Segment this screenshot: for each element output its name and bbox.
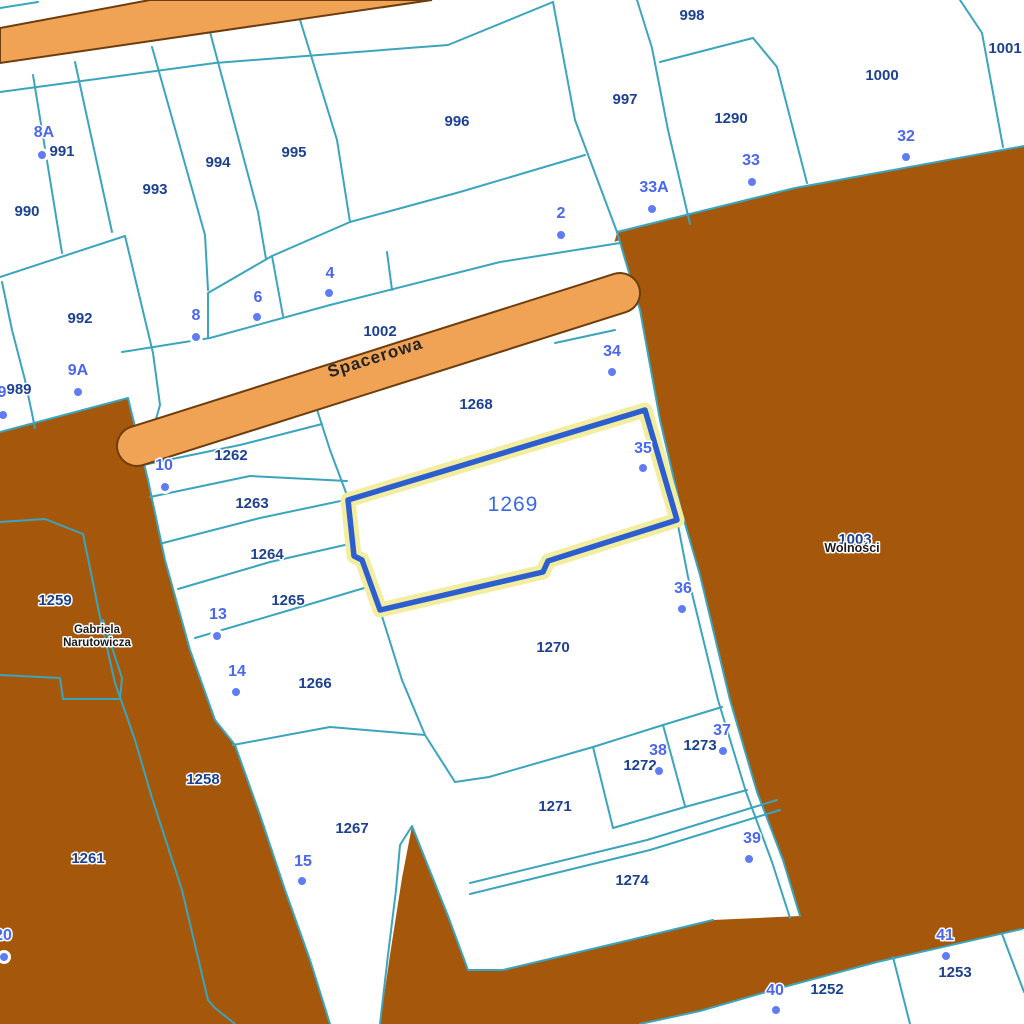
address-point-dot[interactable] <box>941 951 952 962</box>
parcel-number-label: 994 <box>205 154 231 171</box>
parcel-number-label: 995 <box>281 144 306 161</box>
address-number-label: 6 <box>254 289 263 306</box>
parcel-number-label: 996 <box>444 113 469 130</box>
address-point-dot[interactable] <box>654 766 665 777</box>
address-number-label: 4 <box>326 265 335 282</box>
address-point-dot[interactable] <box>191 332 202 343</box>
address-point-dot[interactable] <box>901 152 912 163</box>
address-point-dot[interactable] <box>747 177 758 188</box>
address-point-dot[interactable] <box>744 854 755 865</box>
address-point-dot[interactable] <box>297 876 308 887</box>
address-number-label: 10 <box>155 457 173 474</box>
address-number-label: 32 <box>897 128 915 145</box>
address-point-dot[interactable] <box>73 387 84 398</box>
address-point-dot[interactable] <box>638 463 649 474</box>
address-point-dot[interactable] <box>324 288 335 299</box>
address-point-dot[interactable] <box>0 952 10 963</box>
address-point-dot[interactable] <box>677 604 688 615</box>
address-point-dot[interactable] <box>556 230 567 241</box>
address-point-dot[interactable] <box>771 1005 782 1016</box>
parcel-number-label: 991 <box>49 143 74 160</box>
address-number-label: 41 <box>936 927 954 944</box>
address-number-label: 37 <box>713 722 731 739</box>
parcel-number-label: 997 <box>612 91 637 108</box>
address-number-label: 36 <box>674 580 692 597</box>
parcel-number-label: 1271 <box>538 798 571 815</box>
parcel-number-label: 998 <box>679 7 704 24</box>
parcel-number-label: 1265 <box>271 592 304 609</box>
parcel-number-label: 1261 <box>71 850 104 867</box>
street-label-wolnosci: Wolności <box>824 541 879 555</box>
parcel-number-label: 1259 <box>38 592 71 609</box>
address-number-label: 34 <box>603 343 621 360</box>
parcel-number-label: 1272 <box>623 757 656 774</box>
cadastral-map[interactable]: 9919909939949959969979981290100010019929… <box>0 0 1024 1024</box>
address-point-dot[interactable] <box>212 631 223 642</box>
parcel-number-label: 989 <box>6 381 31 398</box>
parcel-number-label: 1266 <box>298 675 331 692</box>
address-number-label: 13 <box>209 606 227 623</box>
parcel-number-label: 1264 <box>250 546 284 563</box>
address-number-label: 8 <box>192 307 201 324</box>
address-number-label: 40 <box>766 982 784 999</box>
address-point-dot[interactable] <box>0 410 9 421</box>
address-number-label: 14 <box>228 663 246 680</box>
parcel-number-label: 1001 <box>988 40 1021 57</box>
street-label-narutowicza-line1: Gabriela <box>74 624 121 636</box>
parcel-number-label: 1290 <box>714 110 747 127</box>
address-number-label: 33 <box>742 152 760 169</box>
parcel-number-label: 1252 <box>810 981 843 998</box>
parcel-number-label: 990 <box>14 203 39 220</box>
address-number-label: 20 <box>0 927 12 944</box>
parcel-number-label: 1268 <box>459 396 492 413</box>
parcel-number-label: 992 <box>67 310 92 327</box>
address-number-label: 9A <box>68 362 89 379</box>
address-point-dot[interactable] <box>231 687 242 698</box>
address-number-label: 35 <box>634 440 652 457</box>
cadastral-map-viewport[interactable]: 9919909939949959969979981290100010019929… <box>0 0 1024 1024</box>
address-point-dot[interactable] <box>160 482 171 493</box>
address-number-label: 2 <box>557 205 566 222</box>
parcel-number-label: 1002 <box>363 323 396 340</box>
address-point-dot[interactable] <box>37 150 48 161</box>
address-point-dot[interactable] <box>647 204 658 215</box>
parcel-number-label: 1263 <box>235 495 268 512</box>
parcel-number-label: 993 <box>142 181 167 198</box>
parcel-number-label: 1262 <box>214 447 247 464</box>
parcel-number-label: 1258 <box>186 771 219 788</box>
address-number-label: 15 <box>294 853 312 870</box>
address-number-label: 8A <box>34 124 55 141</box>
address-number-label: 39 <box>743 830 761 847</box>
address-point-dot[interactable] <box>607 367 618 378</box>
parcel-number-label: 1000 <box>865 67 898 84</box>
parcel-number-label: 1253 <box>938 964 971 981</box>
selected-parcel-number-label: 1269 <box>488 493 539 516</box>
parcel-number-label: 1274 <box>615 872 649 889</box>
street-label-narutowicza-line2: Narutowicza <box>63 637 131 649</box>
address-number-label: 38 <box>649 742 667 759</box>
parcel-number-label: 1270 <box>536 639 569 656</box>
address-point-dot[interactable] <box>718 746 729 757</box>
parcel-number-label: 1273 <box>683 737 716 754</box>
address-point-dot[interactable] <box>252 312 263 323</box>
parcel-number-label: 1267 <box>335 820 368 837</box>
address-number-label: 33A <box>639 179 669 196</box>
address-number-label: 9 <box>0 384 7 401</box>
